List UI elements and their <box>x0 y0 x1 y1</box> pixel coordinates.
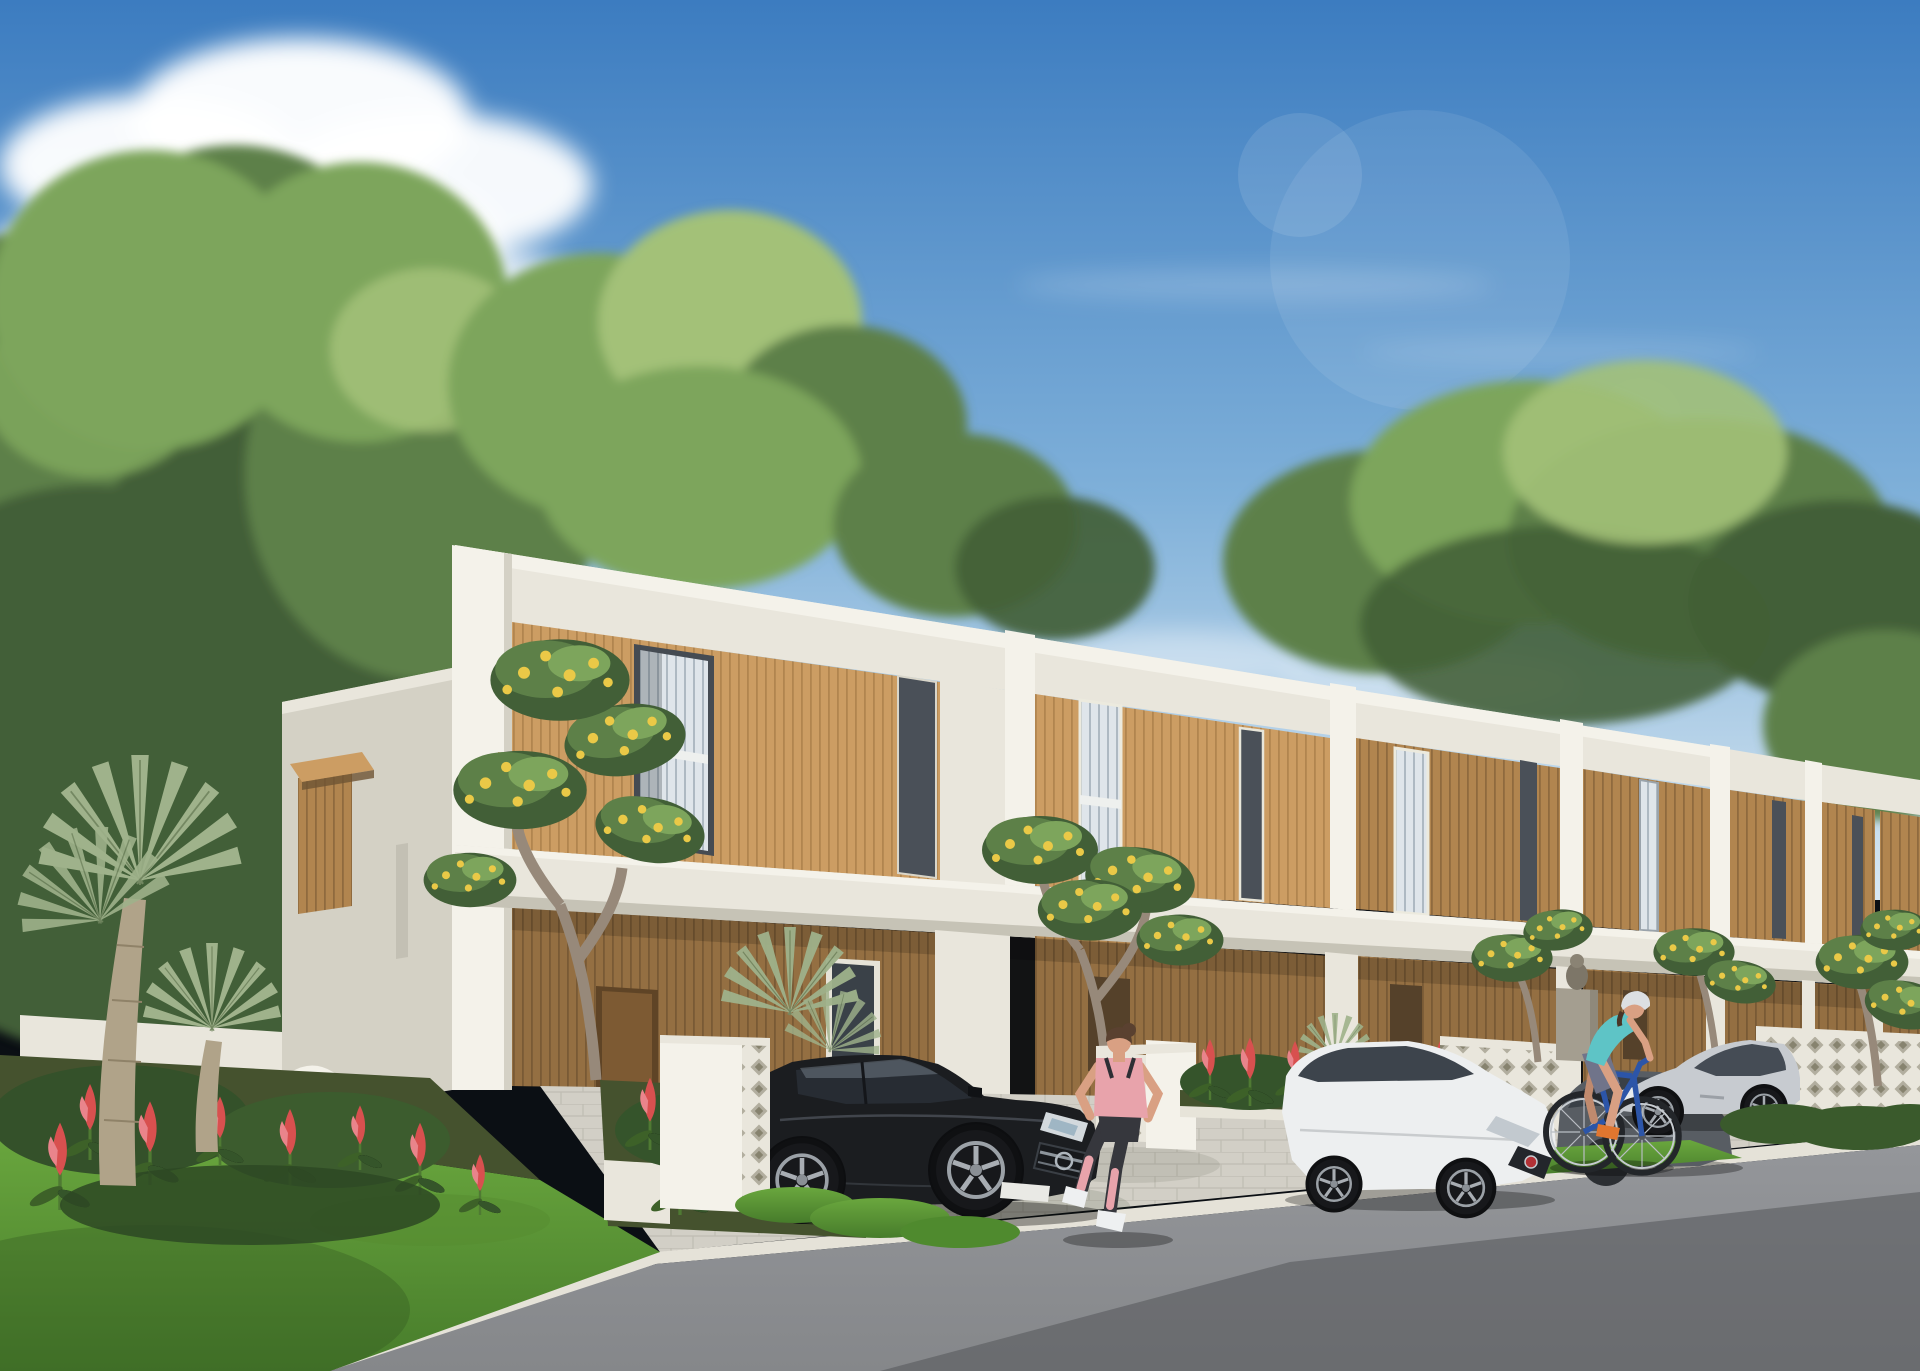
wood-cladding-panel <box>1730 790 1805 943</box>
wheel-front <box>1436 1158 1497 1219</box>
wheel-rear <box>1305 1155 1362 1212</box>
upstairs-window <box>1395 748 1428 915</box>
facade-pier <box>1805 760 1822 945</box>
upstairs-window <box>1640 780 1658 931</box>
facade-pier <box>1710 744 1730 938</box>
render-image <box>0 0 1920 1371</box>
jogger-tank-top <box>1094 1058 1148 1118</box>
side-mirror <box>968 1086 982 1098</box>
hair-bun <box>1122 1023 1136 1037</box>
parapet <box>1875 773 1920 815</box>
jogger-shadow <box>1063 1232 1173 1248</box>
upstairs-window <box>1772 800 1786 939</box>
upstairs-window-slit <box>1240 728 1263 901</box>
facade-pier <box>1560 719 1583 928</box>
upstairs-window-slit <box>898 676 936 878</box>
townhouse-unit-3 <box>1330 683 1560 925</box>
side-slit <box>396 843 408 959</box>
corner-side-wall <box>282 668 452 1118</box>
townhouse-unit-4 <box>1560 719 1710 936</box>
brand-badge <box>1525 1156 1537 1168</box>
side-slat-window <box>298 768 352 914</box>
upstairs-window-slit <box>1520 760 1537 922</box>
upstairs-window <box>1852 815 1863 941</box>
facade-pier <box>1330 683 1356 911</box>
scene-canvas <box>0 0 1920 1371</box>
planter-pillar <box>660 1035 770 1212</box>
cyclist-hair <box>1619 1012 1622 1026</box>
townhouse-unit-5 <box>1710 744 1805 943</box>
wheel-front <box>930 1124 1022 1216</box>
